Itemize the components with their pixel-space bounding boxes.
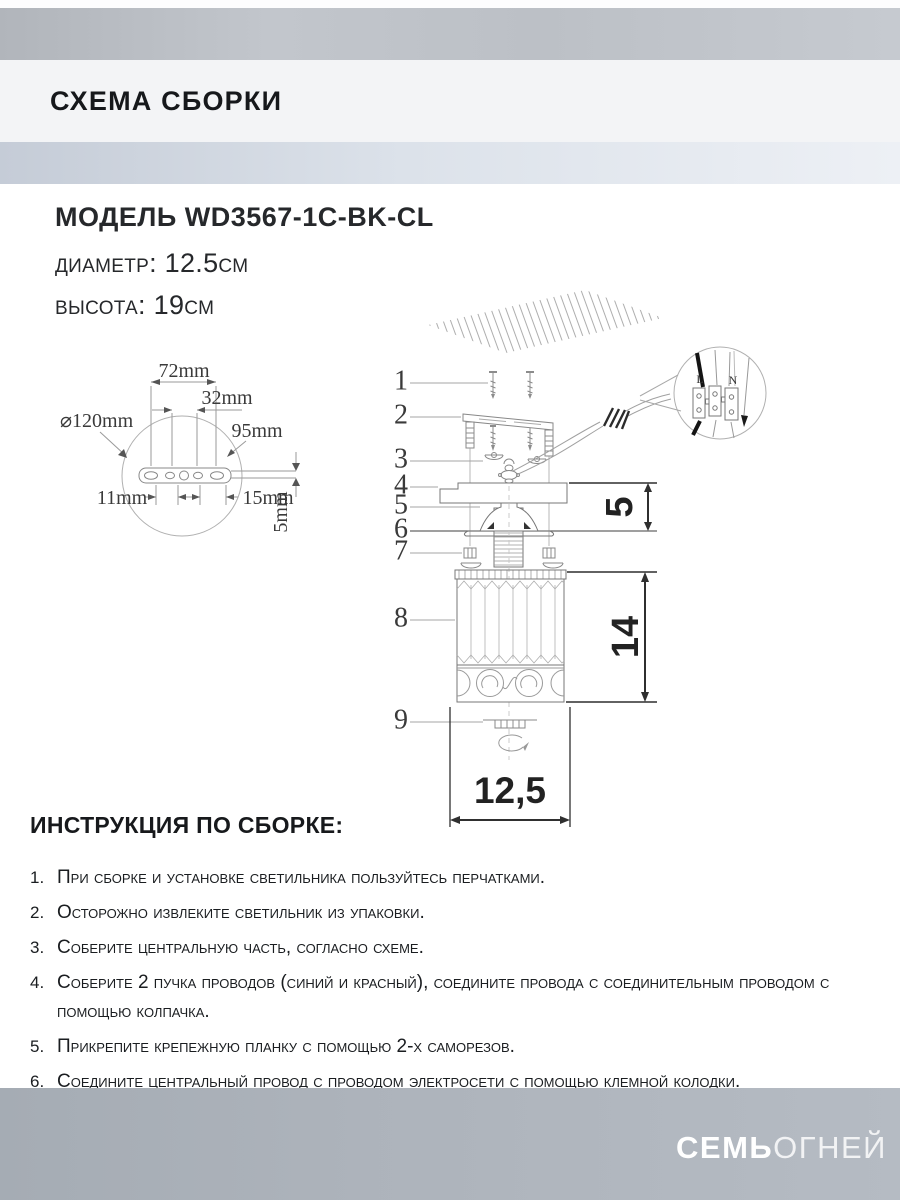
model-diameter: диаметр: 12.5см xyxy=(55,248,434,279)
dim-32mm: 32mm xyxy=(201,387,253,409)
assembly-instructions: ИНСТРУКЦИЯ ПО СБОРКЕ: 1. При сборке и ус… xyxy=(30,812,882,1102)
callout-9: 9 xyxy=(394,704,408,735)
item-number: 1. xyxy=(30,863,57,892)
brand-bold: СЕМЬ xyxy=(676,1130,773,1165)
instructions-title: ИНСТРУКЦИЯ ПО СБОРКЕ: xyxy=(30,812,882,839)
part-mounting-bar xyxy=(463,414,553,456)
assembly-diagram: 72mm 32mm 95mm ⌀120mm 11mm 15mm 5mm xyxy=(0,280,900,828)
terminal-neutral-label: N xyxy=(729,373,738,387)
dim-body-height: 14 xyxy=(566,572,657,702)
dim-12-5-label: 12,5 xyxy=(474,770,546,811)
dim-5mm: 5mm xyxy=(270,491,292,533)
footer-band: СЕМЬОГНЕЙ xyxy=(0,1088,900,1200)
ceiling-hatch xyxy=(428,290,663,353)
dim-14-label: 14 xyxy=(605,616,647,658)
item-text: Прикрепите крепежную планку с помощью 2-… xyxy=(57,1032,882,1061)
part-canopy xyxy=(440,483,567,503)
part-screws xyxy=(489,372,534,451)
brand-light: ОГНЕЙ xyxy=(773,1130,887,1165)
brand-logo: СЕМЬОГНЕЙ xyxy=(676,1130,887,1166)
dim-95mm: 95mm xyxy=(231,420,283,442)
dim-canopy-height: 5 xyxy=(569,483,657,531)
part-cap xyxy=(483,720,537,751)
item-number: 2. xyxy=(30,898,57,927)
terminal-live-label: L xyxy=(696,372,703,386)
callout-7: 7 xyxy=(394,535,408,566)
callout-numbers: 1 2 3 4 5 6 7 8 9 xyxy=(394,365,408,735)
instruction-item: 1. При сборке и установке светильника по… xyxy=(30,863,882,892)
dim-11mm: 11mm xyxy=(97,487,148,509)
item-number: 5. xyxy=(30,1032,57,1061)
callout-1: 1 xyxy=(394,365,408,396)
dim-d120mm: ⌀120mm xyxy=(60,410,134,432)
instruction-item: 5. Прикрепите крепежную планку с помощью… xyxy=(30,1032,882,1061)
header-sub-band xyxy=(0,142,900,184)
exploded-view: 5 14 12,5 1 xyxy=(394,365,671,827)
callout-2: 2 xyxy=(394,399,408,430)
item-text: Осторожно извлеките светильник из упаков… xyxy=(57,898,882,927)
terminal-detail: L N xyxy=(640,347,766,439)
dim-72mm: 72mm xyxy=(158,360,210,382)
callout-8: 8 xyxy=(394,602,408,633)
supply-wire xyxy=(513,394,671,475)
dim-5-label: 5 xyxy=(599,496,641,517)
instruction-item: 3. Соберите центральную часть, согласно … xyxy=(30,933,882,962)
part-lamp-body xyxy=(455,570,566,702)
instruction-item: 2. Осторожно извлеките светильник из упа… xyxy=(30,898,882,927)
instruction-item: 4. Соберите 2 пучка проводов (синий и кр… xyxy=(30,968,882,1026)
model-name: МОДЕЛЬ WD3567-1C-BK-CL xyxy=(55,202,434,233)
header-title-band: СХЕМА СБОРКИ xyxy=(0,60,900,142)
item-number: 3. xyxy=(30,933,57,962)
header-gray-band xyxy=(0,8,900,60)
bracket-detail: 72mm 32mm 95mm ⌀120mm 11mm 15mm 5mm xyxy=(60,360,300,536)
item-text: Соберите 2 пучка проводов (синий и красн… xyxy=(57,968,882,1026)
page-title: СХЕМА СБОРКИ xyxy=(50,86,282,117)
item-number: 4. xyxy=(30,968,57,1026)
top-white-strip xyxy=(0,0,900,8)
wire-connector xyxy=(499,459,520,483)
item-text: Соберите центральную часть, согласно схе… xyxy=(57,933,882,962)
item-text: При сборке и установке светильника польз… xyxy=(57,863,882,892)
